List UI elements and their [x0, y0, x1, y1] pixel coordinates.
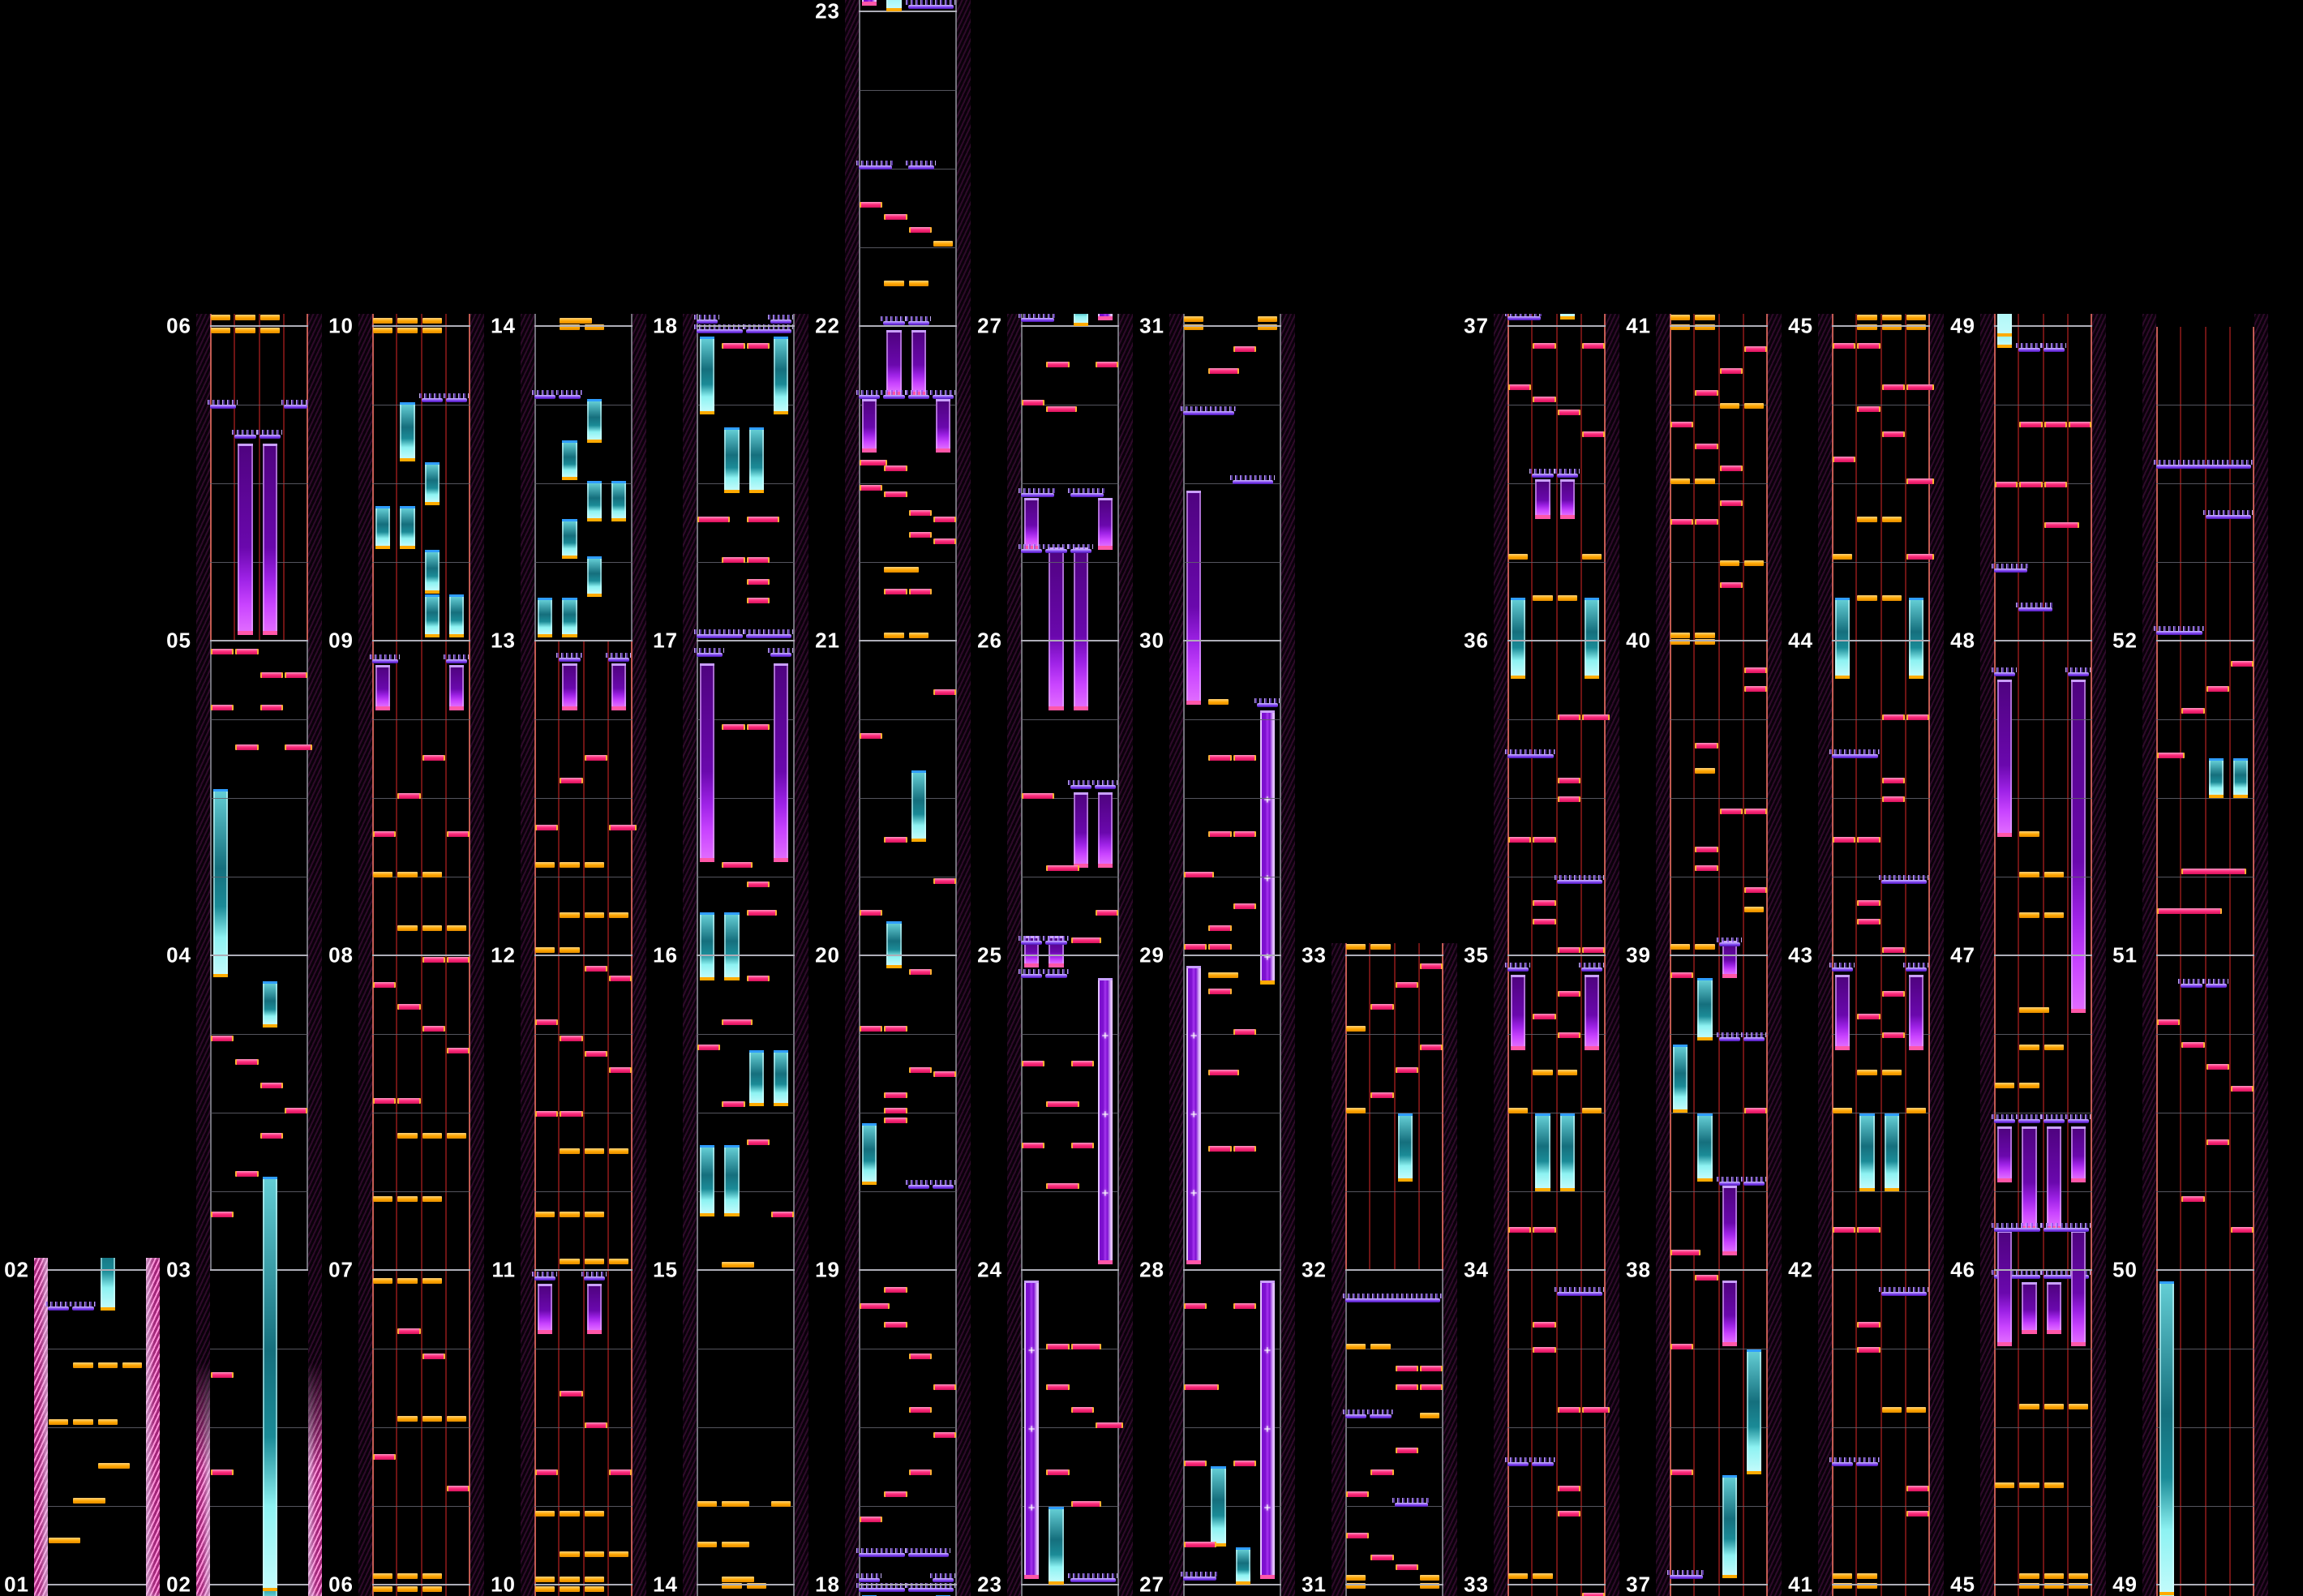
note-pink — [2181, 1042, 2204, 1048]
note-pink — [909, 532, 932, 538]
lane-line — [2205, 1271, 2207, 1585]
note-squiggle — [2206, 515, 2252, 519]
note-squiggle — [1070, 785, 1091, 789]
note-orange — [1346, 1026, 1366, 1032]
measure-column — [2142, 314, 2268, 1596]
measure-label: 03 — [154, 1257, 191, 1282]
note-pink — [1233, 1029, 1256, 1035]
note-pink — [1046, 865, 1079, 871]
note-squiggle — [697, 653, 723, 657]
note-pink — [884, 1092, 907, 1098]
column-border — [521, 314, 534, 1596]
measure-label: 38 — [1614, 1257, 1651, 1282]
measure-label: 26 — [965, 628, 1002, 653]
hold-sparkle: + — [1260, 1426, 1275, 1434]
note-orange — [422, 1586, 442, 1592]
measure-line — [1183, 1584, 1281, 1585]
beat-line — [210, 798, 308, 799]
beat-line — [372, 1427, 470, 1428]
lane-edge-line — [1670, 1271, 1671, 1585]
lane-edge-line — [1994, 1271, 1996, 1585]
note-orange — [560, 1511, 579, 1517]
lane-edge-line — [955, 1271, 957, 1585]
note-pink — [285, 744, 312, 750]
measure-line — [1994, 1269, 2092, 1271]
note-pink — [909, 1407, 932, 1413]
measure-line — [1670, 955, 1768, 956]
measure-label: 35 — [1452, 942, 1489, 967]
measure-label: 36 — [1452, 628, 1489, 653]
note-orange — [535, 1212, 555, 1217]
note-pink — [397, 1328, 420, 1334]
lane-line — [445, 1585, 447, 1596]
lane-edge-line — [1183, 327, 1185, 641]
note-squiggle — [1881, 880, 1928, 884]
note-pink — [909, 1354, 932, 1359]
note-orange — [422, 1573, 442, 1579]
lane-line — [1580, 956, 1582, 1271]
measure-label: 30 — [1127, 628, 1164, 653]
note-orange — [2044, 872, 2064, 877]
lane-edge-line — [793, 641, 795, 956]
measure-3 — [210, 956, 308, 1271]
note-pink — [2207, 1139, 2229, 1145]
note-pink — [1046, 1469, 1069, 1475]
note-pink — [211, 705, 234, 710]
measure-label: 44 — [1776, 628, 1813, 653]
measure-27: +++ — [1183, 1271, 1281, 1585]
measure-line — [534, 325, 633, 327]
note-orange — [1508, 1108, 1528, 1113]
note-orange — [697, 1501, 717, 1507]
note-orange — [585, 1511, 604, 1517]
measure-31 — [1345, 1271, 1443, 1585]
measure-line — [534, 955, 633, 956]
beat-line — [1994, 1427, 2092, 1428]
note-squiggle — [1507, 967, 1529, 972]
lane-edge-line — [2253, 1585, 2254, 1596]
measure-17 — [697, 327, 795, 641]
lane-edge-line — [859, 641, 860, 956]
lane-line — [421, 327, 422, 641]
lane-line — [1556, 1585, 1558, 1596]
measure-label: 18 — [641, 313, 678, 338]
measure-label: 51 — [2100, 942, 2138, 967]
hold-magenta — [1835, 975, 1850, 1050]
lane-line — [1855, 956, 1857, 1271]
lane-line — [2180, 956, 2181, 1271]
lane-edge-line — [1928, 641, 1930, 956]
measure-14 — [697, 1271, 795, 1585]
beat-line — [859, 877, 957, 877]
measure-column — [521, 314, 646, 1596]
note-orange — [1184, 316, 1203, 322]
note-pink — [447, 831, 470, 837]
note-pink — [447, 957, 470, 963]
note-squiggle — [1994, 1119, 2015, 1123]
lane-edge-line — [210, 641, 212, 956]
note-pink — [1508, 1227, 1531, 1233]
beat-line — [859, 1427, 957, 1428]
beat-line — [1507, 1191, 1606, 1192]
note-pink — [560, 1036, 582, 1041]
measure-20 — [859, 641, 957, 956]
measure-line — [859, 1584, 957, 1585]
lane-line — [1693, 956, 1695, 1271]
note-pink — [860, 733, 882, 739]
lane-line — [396, 641, 397, 956]
measure-12 — [534, 641, 633, 956]
measure-line — [210, 1584, 308, 1585]
measure-9 — [534, 1585, 633, 1596]
measure-line — [697, 1584, 795, 1585]
note-squiggle — [1183, 1577, 1216, 1581]
measure-line — [1670, 640, 1768, 641]
note-orange — [560, 1212, 579, 1217]
note-squiggle — [908, 321, 929, 325]
note-pink — [2044, 522, 2079, 528]
measure-label: 21 — [803, 628, 840, 653]
note-pink — [771, 1212, 794, 1217]
note-pink — [1096, 362, 1118, 367]
measure-label: 02 — [154, 1572, 191, 1596]
note-squiggle — [859, 1578, 880, 1582]
note-pink — [2231, 661, 2254, 667]
note-orange — [585, 1551, 604, 1557]
measure-label: 39 — [1614, 942, 1651, 967]
note-orange — [1208, 699, 1228, 705]
note-squiggle — [2018, 607, 2052, 611]
note-squiggle — [1021, 318, 1054, 322]
measure-line — [1832, 955, 1930, 956]
note-pink — [1420, 1045, 1443, 1050]
lane-line — [421, 956, 422, 1271]
measure-44 — [1832, 327, 1930, 641]
lane-edge-line — [534, 641, 536, 956]
lane-line — [234, 327, 235, 641]
lane-edge-line — [1766, 956, 1768, 1271]
lane-edge-line — [631, 641, 633, 956]
note-pink — [1046, 406, 1076, 412]
lane-edge-line — [1766, 1585, 1768, 1596]
measure-label: 28 — [1127, 1257, 1164, 1282]
lane-line — [2067, 641, 2069, 956]
measure-line — [1507, 955, 1606, 956]
measure-49 — [1994, 314, 2092, 327]
measure-30 — [1345, 1585, 1443, 1596]
note-orange — [1695, 633, 1714, 638]
measure-label: 41 — [1614, 313, 1651, 338]
note-orange — [1670, 633, 1690, 638]
lane-edge-line — [859, 12, 860, 327]
measure-16 — [697, 641, 795, 956]
measure-label: 49 — [2100, 1572, 2138, 1596]
note-pink — [1071, 1501, 1101, 1507]
beat-line — [372, 1506, 470, 1507]
note-orange — [560, 1586, 579, 1592]
lane-edge-line — [1766, 327, 1768, 641]
note-pink — [211, 649, 234, 654]
note-squiggle — [259, 435, 281, 439]
note-pink — [447, 1486, 470, 1491]
note-squiggle — [1021, 549, 1042, 553]
hold-magenta — [1560, 479, 1575, 519]
lane-line — [445, 956, 447, 1271]
note-squiggle — [584, 1276, 605, 1281]
hold-magenta — [2022, 1282, 2036, 1334]
measure-line — [1021, 640, 1119, 641]
note-pink — [884, 1322, 907, 1328]
note-orange — [609, 1259, 628, 1264]
lane-line — [283, 327, 285, 641]
measure-label: 46 — [1938, 1257, 1975, 1282]
note-pink — [535, 825, 558, 830]
beat-line — [372, 1113, 470, 1113]
beat-line — [697, 562, 795, 563]
measure-31 — [1183, 314, 1281, 327]
lane-edge-line — [1021, 1271, 1023, 1585]
measure-label: 04 — [154, 942, 191, 967]
measure-line — [48, 1584, 146, 1585]
beat-line — [859, 719, 957, 720]
lane-edge-line — [1021, 1585, 1023, 1596]
note-pink — [1533, 1322, 1555, 1328]
beat-line — [210, 483, 308, 484]
note-pink — [1184, 1384, 1219, 1390]
note-orange — [447, 1133, 466, 1139]
note-pink — [1906, 714, 1929, 720]
beat-line — [1183, 562, 1281, 563]
hold-magenta — [538, 1284, 552, 1334]
note-pink — [1744, 686, 1767, 692]
beat-line — [1670, 1506, 1768, 1507]
note-orange — [49, 1419, 68, 1425]
note-pink — [2231, 1086, 2254, 1092]
lane-edge-line — [1604, 956, 1606, 1271]
measure-37 — [1670, 1271, 1768, 1585]
measure-1 — [210, 1585, 308, 1596]
pink-border-glow — [196, 1362, 210, 1596]
beat-line — [372, 1349, 470, 1349]
beat-line — [534, 1349, 633, 1349]
lane-line — [1693, 327, 1695, 641]
measure-label: 07 — [316, 1257, 354, 1282]
note-squiggle — [746, 329, 792, 333]
note-squiggle — [1832, 754, 1878, 758]
note-squiggle — [1095, 785, 1116, 789]
lane-line — [1531, 1271, 1533, 1585]
lane-edge-line — [1117, 327, 1119, 641]
measure-10 — [534, 1271, 633, 1585]
lane-line — [1718, 641, 1720, 956]
beat-line — [1183, 798, 1281, 799]
measure-line — [859, 325, 957, 327]
lane-edge-line — [469, 956, 470, 1271]
measure-2 — [210, 1271, 308, 1585]
note-pink — [560, 778, 582, 783]
lane-line — [607, 1585, 609, 1596]
measure-label: 09 — [316, 628, 354, 653]
lane-edge-line — [1183, 641, 1185, 956]
lane-line — [1905, 956, 1906, 1271]
note-pink — [722, 1019, 752, 1025]
measure-30 — [1183, 327, 1281, 641]
note-squiggle — [2018, 348, 2039, 352]
note-pink — [1744, 667, 1767, 673]
hold-cyan — [1885, 1113, 1899, 1191]
hold-magenta — [263, 444, 277, 636]
beat-line — [1670, 877, 1768, 877]
measure-42 — [1832, 956, 1930, 1271]
measure-18 — [697, 314, 795, 327]
measure-line — [859, 11, 957, 12]
lane-edge-line — [1507, 327, 1509, 641]
note-squiggle — [372, 659, 398, 663]
note-pink — [1096, 910, 1118, 916]
note-orange — [2019, 1573, 2039, 1579]
measure-label: 37 — [1452, 313, 1489, 338]
lane-edge-line — [1928, 327, 1930, 641]
hold-magenta — [449, 665, 464, 710]
note-orange — [373, 1196, 392, 1202]
note-pink — [722, 862, 752, 868]
note-pink — [884, 1118, 907, 1123]
measure-line — [210, 1269, 308, 1271]
hold-magenta — [2022, 1126, 2036, 1230]
note-pink — [884, 1287, 907, 1293]
measure-label: 05 — [154, 628, 191, 653]
hold-cyan — [449, 594, 464, 637]
hold-magenta — [375, 665, 390, 710]
note-squiggle — [770, 320, 791, 324]
hold-cyan — [1049, 1507, 1063, 1585]
note-squiggle — [210, 405, 236, 409]
note-squiggle — [1257, 703, 1278, 707]
hold-cyan — [2233, 758, 2248, 798]
note-pink — [260, 1083, 283, 1088]
note-orange — [373, 1278, 392, 1284]
note-pink — [1906, 1486, 1929, 1491]
note-squiggle — [859, 165, 892, 169]
note-squiggle — [1532, 1462, 1553, 1466]
note-pink — [933, 1432, 956, 1438]
note-pink — [1208, 1146, 1231, 1152]
beat-line — [697, 1427, 795, 1428]
hold-cyan — [774, 1050, 788, 1106]
measure-50 — [2156, 956, 2254, 1271]
beat-line — [1507, 1349, 1606, 1349]
note-pink — [1558, 796, 1580, 802]
measure-label: 34 — [1452, 1257, 1489, 1282]
lane-edge-line — [1928, 956, 1930, 1271]
measure-6 — [210, 314, 308, 327]
note-pink — [1857, 1227, 1880, 1233]
note-orange — [235, 328, 255, 333]
hold-cyan — [263, 981, 277, 1028]
measure-line — [1345, 1584, 1443, 1585]
hold-cyan — [611, 481, 626, 521]
measure-line — [859, 955, 957, 956]
note-orange — [535, 862, 555, 868]
note-orange — [1857, 1573, 1876, 1579]
lane-line — [1855, 1271, 1857, 1585]
note-pink — [747, 598, 770, 603]
note-pink — [1184, 944, 1207, 950]
lane-line — [2180, 1271, 2181, 1585]
lane-line — [1905, 1271, 1906, 1585]
measure-14 — [534, 314, 633, 327]
note-orange — [73, 1498, 105, 1504]
note-orange — [1508, 1573, 1528, 1579]
beat-line — [859, 483, 957, 484]
note-pink — [1995, 482, 2018, 487]
column-border — [1007, 314, 1021, 1596]
note-pink — [1533, 919, 1555, 925]
hold-cyan — [562, 598, 577, 637]
lane-edge-line — [1604, 327, 1606, 641]
note-pink — [1695, 444, 1718, 449]
measure-line — [1507, 1269, 1606, 1271]
measure-7 — [372, 956, 470, 1271]
beat-line — [2156, 405, 2254, 405]
note-pink — [933, 878, 956, 884]
hold-magenta — [700, 663, 714, 861]
beat-line — [210, 1349, 308, 1349]
lane-edge-line — [1832, 1271, 1833, 1585]
measure-26 — [1183, 1585, 1281, 1596]
note-pink — [1208, 944, 1231, 950]
hold-sparkle: + — [1186, 1190, 1201, 1198]
note-pink — [1695, 519, 1718, 525]
note-pink — [1582, 343, 1605, 349]
note-pink — [1558, 1032, 1580, 1038]
hold-magenta — [1098, 792, 1113, 868]
beat-line — [1994, 1506, 2092, 1507]
note-pink — [235, 649, 258, 654]
note-pink — [747, 882, 770, 887]
note-pink — [1833, 457, 1855, 462]
note-orange — [211, 328, 230, 333]
note-pink — [1208, 1070, 1238, 1075]
note-orange — [1670, 944, 1690, 950]
lane-line — [583, 641, 585, 956]
measure-line — [1670, 1584, 1768, 1585]
beat-line — [1183, 719, 1281, 720]
lane-line — [558, 1271, 560, 1585]
note-squiggle — [1021, 941, 1042, 945]
measure-label: 31 — [1289, 1572, 1327, 1596]
note-orange — [1720, 560, 1739, 566]
note-pink — [235, 1059, 258, 1065]
hold-sparkle: + — [1098, 1111, 1113, 1119]
note-orange — [560, 947, 579, 953]
note-pink — [1233, 346, 1256, 352]
lane-edge-line — [307, 641, 308, 956]
beat-line — [372, 562, 470, 563]
note-squiggle — [234, 435, 255, 439]
pink-border-glow — [146, 1258, 160, 1596]
measure-line — [697, 640, 795, 641]
note-pink — [1184, 872, 1214, 877]
measure-column — [683, 314, 808, 1596]
note-orange — [884, 281, 903, 286]
beat-line — [1832, 562, 1930, 563]
beat-line — [372, 798, 470, 799]
note-pink — [1744, 809, 1767, 814]
note-squiggle — [1832, 1462, 1853, 1466]
lane-edge-line — [2091, 327, 2092, 641]
measure-25 — [1021, 641, 1119, 956]
